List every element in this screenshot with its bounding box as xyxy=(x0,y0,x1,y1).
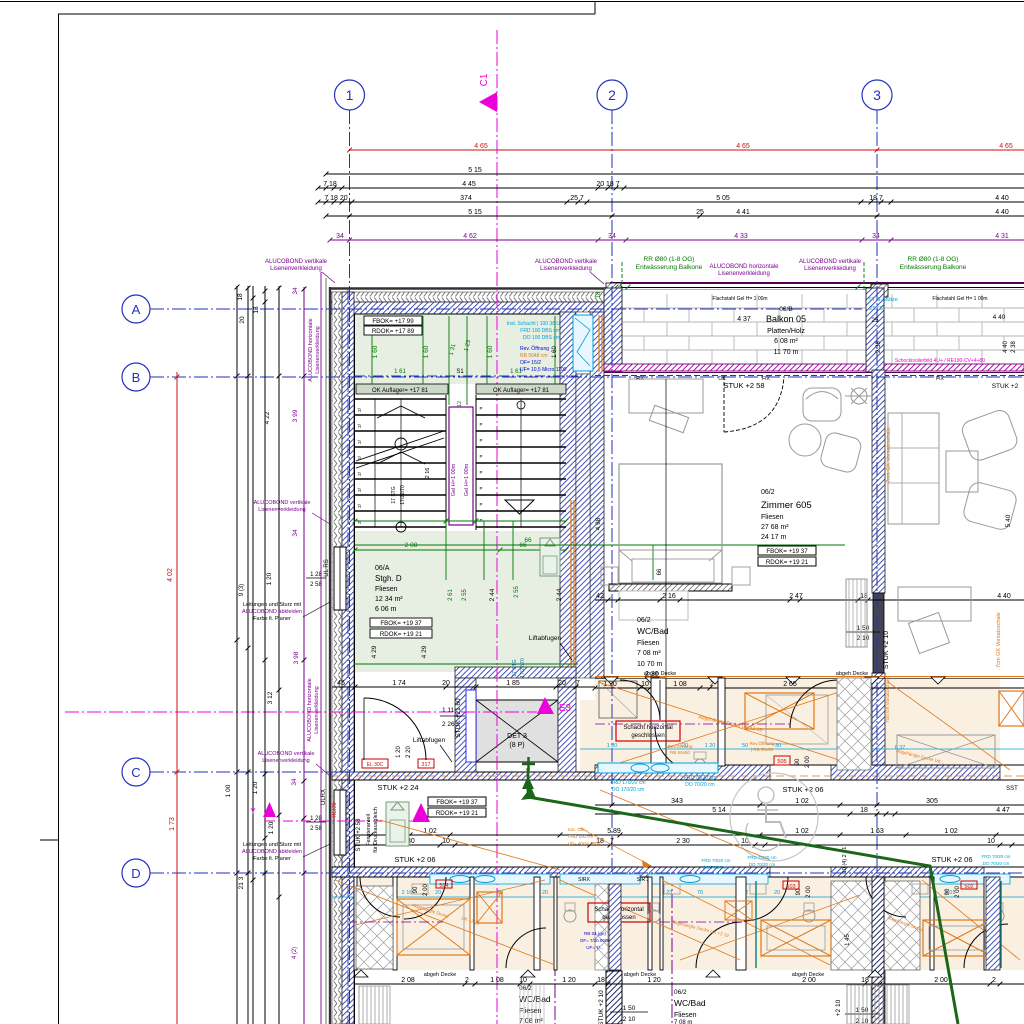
svg-text:06/2: 06/2 xyxy=(674,989,687,996)
svg-text:2 00: 2 00 xyxy=(423,884,429,896)
svg-text:2 58: 2 58 xyxy=(310,826,322,832)
svg-text:Y: Y xyxy=(250,807,256,816)
svg-text:4 40: 4 40 xyxy=(1003,341,1009,353)
svg-text:50: 50 xyxy=(742,743,748,749)
svg-text:4 41: 4 41 xyxy=(736,209,750,216)
svg-text:2 55: 2 55 xyxy=(462,589,468,601)
svg-text:1 02: 1 02 xyxy=(795,828,809,835)
svg-text:Schacht horizontal: Schacht horizontal xyxy=(623,725,672,731)
svg-text:70: 70 xyxy=(697,890,703,896)
svg-text:502: 502 xyxy=(964,884,973,890)
svg-text:Schockisolierbild 4U+ / RE190-: Schockisolierbild 4U+ / RE190-CV+4+80 xyxy=(895,358,985,364)
svg-text:4 31: 4 31 xyxy=(995,233,1009,240)
svg-text:RB 50x50: RB 50x50 xyxy=(670,750,690,755)
svg-text:Lisenenverkleidung: Lisenenverkleidung xyxy=(258,507,305,513)
svg-text:Entwässerung Balkone: Entwässerung Balkone xyxy=(636,264,703,271)
svg-text:STUK +2 10: STUK +2 10 xyxy=(883,631,890,669)
svg-text:ALUCOBOND vertikale: ALUCOBOND vertikale xyxy=(799,259,862,265)
svg-text:06/2: 06/2 xyxy=(761,489,775,496)
svg-text:ALUCOBOND vertikale: ALUCOBOND vertikale xyxy=(535,259,598,265)
svg-text:1 61: 1 61 xyxy=(394,369,406,375)
svg-text:4 33: 4 33 xyxy=(734,233,748,240)
svg-text:66: 66 xyxy=(657,568,663,575)
svg-text:6 06 m: 6 06 m xyxy=(375,606,397,613)
svg-text:20: 20 xyxy=(774,890,780,896)
svg-text:S1: S1 xyxy=(456,369,464,375)
svg-text:abgeh Decke: abgeh Decke xyxy=(644,671,676,677)
svg-text:UL RS: UL RS xyxy=(324,559,330,576)
svg-text:2 44: 2 44 xyxy=(489,588,496,601)
svg-text:P: P xyxy=(479,422,482,427)
svg-text:DET 3: DET 3 xyxy=(507,733,527,740)
svg-text:UF= 40cm 180F: UF= 40cm 180F xyxy=(568,841,601,846)
svg-text:3 98: 3 98 xyxy=(293,651,300,664)
svg-text:25 7: 25 7 xyxy=(570,195,584,202)
svg-text:2 61: 2 61 xyxy=(448,589,454,601)
svg-text:REI90: REI90 xyxy=(332,802,338,817)
svg-text:4 47: 4 47 xyxy=(996,807,1010,814)
svg-text:4 98: 4 98 xyxy=(595,517,602,530)
svg-text:Fliesen: Fliesen xyxy=(519,1008,542,1015)
svg-text:504: 504 xyxy=(439,883,448,889)
svg-text:STUK +2 06: STUK +2 06 xyxy=(782,785,823,794)
svg-text:FRD 70/20 cm: FRD 70/20 cm xyxy=(981,854,1010,859)
svg-text:5 40: 5 40 xyxy=(1005,514,1012,527)
svg-text:1 45: 1 45 xyxy=(845,934,851,946)
svg-text:6 37: 6 37 xyxy=(895,745,906,751)
svg-text:D: D xyxy=(131,866,140,881)
svg-text:2 00: 2 00 xyxy=(955,886,961,898)
svg-text:34: 34 xyxy=(291,778,298,786)
svg-text:für Druckausgleich: für Druckausgleich xyxy=(373,807,379,853)
svg-text:305: 305 xyxy=(926,798,938,805)
svg-text:1 20: 1 20 xyxy=(647,977,661,984)
svg-text:17/22/70: 17/22/70 xyxy=(400,485,406,505)
svg-text:343: 343 xyxy=(671,798,683,805)
svg-text:Fliesen: Fliesen xyxy=(761,514,784,521)
svg-text:Platten/Holz: Platten/Holz xyxy=(767,328,805,335)
svg-text:FRD 100 cm: FRD 100 cm xyxy=(568,834,594,839)
svg-text:ALUCOBOND horizontale: ALUCOBOND horizontale xyxy=(308,318,314,381)
svg-text:3 99: 3 99 xyxy=(292,409,299,422)
svg-text:FBOK= +19 37: FBOK= +19 37 xyxy=(766,548,808,555)
svg-text:90: 90 xyxy=(413,886,419,893)
svg-text:2: 2 xyxy=(465,977,469,984)
svg-text:ALUCOBOND abkleiden: ALUCOBOND abkleiden xyxy=(242,849,302,855)
svg-text:20: 20 xyxy=(558,680,566,687)
svg-text:20: 20 xyxy=(442,680,450,687)
svg-text:4 (2): 4 (2) xyxy=(292,947,298,959)
svg-text:SIRX: SIRX xyxy=(578,877,590,883)
svg-text:18: 18 xyxy=(237,293,244,301)
svg-text:Lisenenverkleidung: Lisenenverkleidung xyxy=(262,758,309,764)
svg-text:RR Ø80 (1-8 OG): RR Ø80 (1-8 OG) xyxy=(644,256,695,263)
svg-text:UF= 7/...: UF= 7/... xyxy=(586,945,603,950)
svg-text:Fliesen: Fliesen xyxy=(674,1012,697,1019)
svg-text:UF= 10,5 Micro 1100: UF= 10,5 Micro 1100 xyxy=(520,367,567,373)
svg-text:RDOK= +17 89: RDOK= +17 89 xyxy=(372,328,415,335)
svg-text:5 89: 5 89 xyxy=(607,828,621,835)
svg-text:66: 66 xyxy=(524,537,532,544)
svg-text:FBOK= +19 37: FBOK= +19 37 xyxy=(436,799,478,806)
svg-text:OF= 15/2: OF= 15/2 xyxy=(520,360,541,366)
svg-text:1 20: 1 20 xyxy=(562,977,576,984)
svg-text:1 20: 1 20 xyxy=(705,743,716,749)
svg-text:1 20: 1 20 xyxy=(266,572,273,585)
svg-text:ALUCOBOND vertikale: ALUCOBOND vertikale xyxy=(258,751,315,757)
svg-text:Liftabfugen: Liftabfugen xyxy=(529,635,562,642)
svg-text:5 05: 5 05 xyxy=(716,195,730,202)
svg-text:34: 34 xyxy=(872,233,880,240)
svg-text:7 08 m²: 7 08 m² xyxy=(637,650,661,657)
svg-text:WC/Bad: WC/Bad xyxy=(637,626,669,636)
svg-text:EL 30C: EL 30C xyxy=(367,762,384,768)
svg-text:Balkon 05: Balkon 05 xyxy=(766,314,806,324)
svg-text:STUK +2 10: STUK +2 10 xyxy=(598,990,605,1024)
svg-text:2 10: 2 10 xyxy=(623,1016,636,1023)
svg-text:Gel H=1 00m: Gel H=1 00m xyxy=(464,463,470,496)
svg-text:Leitungen und Sturz mit: Leitungen und Sturz mit xyxy=(243,602,302,608)
svg-text:1 20: 1 20 xyxy=(252,781,259,794)
svg-text:STUK +2 58: STUK +2 58 xyxy=(356,818,362,852)
svg-text:1 00: 1 00 xyxy=(225,784,232,797)
svg-text:RB 5048 cm: RB 5048 cm xyxy=(520,353,548,359)
svg-text:Flachstahl Gel H= 1 00m: Flachstahl Gel H= 1 00m xyxy=(712,296,767,302)
svg-text:1 50: 1 50 xyxy=(623,1005,636,1012)
svg-text:P: P xyxy=(479,470,482,475)
svg-text:25: 25 xyxy=(871,317,879,324)
svg-text:2 30: 2 30 xyxy=(676,838,690,845)
svg-text:06/2: 06/2 xyxy=(637,617,651,624)
svg-text:RDOK= +19 21: RDOK= +19 21 xyxy=(436,810,479,817)
svg-text:| RB 50x50: | RB 50x50 xyxy=(751,747,774,752)
svg-text:Stgh. D: Stgh. D xyxy=(375,574,402,583)
svg-text:06/B: 06/B xyxy=(779,306,792,313)
svg-text:34: 34 xyxy=(292,287,299,295)
svg-text:Zimmer 605: Zimmer 605 xyxy=(761,500,812,511)
svg-text:4 40: 4 40 xyxy=(993,314,1006,321)
svg-text:1 50: 1 50 xyxy=(857,625,870,632)
svg-text:2 00: 2 00 xyxy=(806,886,812,898)
svg-text:11 70 m: 11 70 m xyxy=(774,349,799,356)
svg-text:4 45: 4 45 xyxy=(462,181,476,188)
svg-text:5 15: 5 15 xyxy=(468,167,482,174)
svg-text:Flachstahl Gel H= 1 00m: Flachstahl Gel H= 1 00m xyxy=(932,296,987,302)
svg-text:7cm GK Vorsatzschale: 7cm GK Vorsatzschale xyxy=(885,677,890,723)
svg-text:4 65: 4 65 xyxy=(736,143,750,150)
svg-text:1 20: 1 20 xyxy=(607,743,618,749)
svg-text:1 74: 1 74 xyxy=(392,680,406,687)
svg-text:13: 13 xyxy=(253,306,260,314)
svg-text:2 38: 2 38 xyxy=(1011,341,1017,353)
svg-text:RDOK= +19 21: RDOK= +19 21 xyxy=(766,559,809,566)
svg-text:17 STG: 17 STG xyxy=(391,486,397,503)
svg-text:4 65: 4 65 xyxy=(474,143,488,150)
svg-text:Farbe lt. Planer: Farbe lt. Planer xyxy=(253,856,291,862)
svg-text:FRD 70/20 cm: FRD 70/20 cm xyxy=(747,855,776,860)
svg-text:1 11: 1 11 xyxy=(442,707,455,714)
svg-text:C: C xyxy=(131,765,140,780)
svg-text:RR Ø80 (1-8 OG): RR Ø80 (1-8 OG) xyxy=(908,256,959,263)
svg-text:9 (3): 9 (3) xyxy=(239,584,245,596)
svg-text:Lisenenverkleidung: Lisenenverkleidung xyxy=(315,326,321,373)
svg-text:SST: SST xyxy=(1006,786,1018,792)
svg-text:2 16: 2 16 xyxy=(425,468,431,479)
svg-text:1 85: 1 85 xyxy=(506,680,520,687)
svg-text:Rev.Öffnung: Rev.Öffnung xyxy=(750,740,775,746)
svg-text:18: 18 xyxy=(861,977,869,984)
svg-text:1 08: 1 08 xyxy=(673,681,687,688)
svg-text:4 62: 4 62 xyxy=(463,233,477,240)
svg-text:DO 70/20 cm: DO 70/20 cm xyxy=(983,861,1010,866)
svg-text:Rev. Öffnung: Rev. Öffnung xyxy=(520,345,549,352)
svg-text:90: 90 xyxy=(795,758,801,765)
svg-text:1 60: 1 60 xyxy=(552,346,558,358)
svg-text:7 08 m: 7 08 m xyxy=(674,1020,692,1024)
svg-text:20: 20 xyxy=(239,316,246,324)
svg-text:OK Auflager= +17 81: OK Auflager= +17 81 xyxy=(372,388,429,394)
svg-text:DO 70/20 cm: DO 70/20 cm xyxy=(703,865,730,870)
svg-text:25: 25 xyxy=(696,209,704,216)
svg-text:2: 2 xyxy=(608,87,616,103)
svg-text:503: 503 xyxy=(786,884,795,890)
svg-text:5 14: 5 14 xyxy=(712,807,726,814)
svg-text:DO 170/20 cm: DO 170/20 cm xyxy=(612,787,644,793)
svg-text:ST B-Stütze: ST B-Stütze xyxy=(868,297,898,303)
svg-text:Lisenenverkleidung: Lisenenverkleidung xyxy=(718,271,770,277)
svg-text:1 02: 1 02 xyxy=(944,828,958,835)
svg-text:24 17 m: 24 17 m xyxy=(761,534,786,541)
svg-text:7cm GK Vorsatzschale: 7cm GK Vorsatzschale xyxy=(996,612,1002,668)
svg-text:FRD 100 DBS cm: FRD 100 DBS cm xyxy=(520,328,560,334)
svg-text:abgeh Decke: abgeh Decke xyxy=(424,972,456,978)
svg-text:FRD 70/20 cm: FRD 70/20 cm xyxy=(701,858,730,863)
svg-text:P: P xyxy=(479,454,482,459)
svg-text:P: P xyxy=(479,486,482,491)
svg-text:7 18: 7 18 xyxy=(323,181,337,188)
svg-text:3 12: 3 12 xyxy=(267,691,274,704)
svg-text:2 44: 2 44 xyxy=(556,588,563,601)
svg-text:10 70 m: 10 70 m xyxy=(637,661,662,668)
svg-text:5 15: 5 15 xyxy=(468,209,482,216)
svg-text:4 40: 4 40 xyxy=(995,195,1009,202)
svg-text:STUK +2 06: STUK +2 06 xyxy=(394,855,435,864)
svg-text:90: 90 xyxy=(796,888,802,895)
svg-text:34: 34 xyxy=(292,529,299,537)
svg-text:2 55: 2 55 xyxy=(514,586,520,598)
svg-text:Entwässerung Balkone: Entwässerung Balkone xyxy=(900,264,967,271)
svg-text:34: 34 xyxy=(608,233,616,240)
svg-text:4 29: 4 29 xyxy=(371,645,378,658)
svg-text:P: P xyxy=(479,438,482,443)
svg-text:ALUCOBOND horizontale: ALUCOBOND horizontale xyxy=(709,264,779,270)
svg-text:30: 30 xyxy=(775,743,781,749)
svg-text:Lisenenverkleidung: Lisenenverkleidung xyxy=(270,266,322,272)
svg-text:2 16: 2 16 xyxy=(662,593,676,600)
svg-text:42: 42 xyxy=(596,593,604,600)
svg-text:18: 18 xyxy=(860,807,868,814)
svg-text:4 65: 4 65 xyxy=(999,143,1013,150)
svg-text:Lisenenverkleidung: Lisenenverkleidung xyxy=(314,686,320,733)
svg-text:ALUCOBOND vertikale: ALUCOBOND vertikale xyxy=(254,500,311,506)
svg-text:2 08: 2 08 xyxy=(405,542,418,549)
svg-text:P: P xyxy=(479,502,482,507)
svg-text:2 58: 2 58 xyxy=(310,582,322,588)
svg-text:21 3: 21 3 xyxy=(238,876,245,889)
svg-text:FBOK= +17 99: FBOK= +17 99 xyxy=(372,318,414,325)
svg-text:WC/Bad: WC/Bad xyxy=(674,998,706,1008)
svg-text:90: 90 xyxy=(945,888,951,895)
svg-text:2 47: 2 47 xyxy=(789,593,803,600)
svg-text:20 18 7: 20 18 7 xyxy=(596,181,619,188)
svg-text:45: 45 xyxy=(337,680,345,687)
svg-text:2: 2 xyxy=(992,977,996,984)
svg-text:1 20: 1 20 xyxy=(268,821,275,834)
svg-text:Fliesen: Fliesen xyxy=(375,586,398,593)
svg-text:1 08: 1 08 xyxy=(490,977,504,984)
svg-text:10: 10 xyxy=(987,838,995,845)
svg-text:2 16: 2 16 xyxy=(402,890,413,896)
svg-text:4 40: 4 40 xyxy=(995,209,1009,216)
svg-text:1 60: 1 60 xyxy=(487,345,494,358)
svg-text:Inst. Schacht | 100 38 U: Inst. Schacht | 100 38 U xyxy=(507,321,561,327)
svg-text:OK Auflager= +17 81: OK Auflager= +17 81 xyxy=(493,388,550,394)
svg-text:Liftabfugen: Liftabfugen xyxy=(413,737,446,744)
svg-text:Fensteranteil: Fensteranteil xyxy=(366,814,372,846)
svg-text:1 02: 1 02 xyxy=(795,798,809,805)
svg-text:4 02: 4 02 xyxy=(167,568,174,582)
svg-text:A: A xyxy=(132,302,141,317)
svg-text:2 65: 2 65 xyxy=(783,681,797,688)
svg-text:2 20: 2 20 xyxy=(406,746,412,758)
svg-text:18: 18 xyxy=(597,977,605,984)
svg-text:E3: E3 xyxy=(559,703,572,714)
svg-text:DO 70/20 cm: DO 70/20 cm xyxy=(749,862,776,867)
svg-text:RB 04 (ge): RB 04 (ge) xyxy=(584,931,606,936)
svg-text:B: B xyxy=(132,370,141,385)
svg-text:ALUCOBOND vertikale: ALUCOBOND vertikale xyxy=(265,259,328,265)
svg-text:2 10: 2 10 xyxy=(857,635,870,642)
svg-text:1 60: 1 60 xyxy=(423,345,430,358)
svg-text:+2 10: +2 10 xyxy=(835,999,842,1016)
svg-text:3: 3 xyxy=(873,87,881,103)
svg-text:17/22/70: 17/22/70 xyxy=(520,658,526,678)
svg-text:27 68 m²: 27 68 m² xyxy=(761,524,789,531)
svg-text:Lisenenverkleidung: Lisenenverkleidung xyxy=(540,266,592,272)
svg-text:12 34 m²: 12 34 m² xyxy=(375,596,403,603)
svg-text:DO 70/20 cm: DO 70/20 cm xyxy=(685,782,714,788)
svg-text:18: 18 xyxy=(596,291,602,298)
svg-text:2 08: 2 08 xyxy=(401,977,415,984)
svg-text:ALUCOBOND abkleiden: ALUCOBOND abkleiden xyxy=(242,609,302,615)
svg-text:Rev.Öffnung: Rev.Öffnung xyxy=(668,743,693,749)
svg-text:FBOK= +19 37: FBOK= +19 37 xyxy=(380,620,422,627)
svg-text:FRD 70/20 cm: FRD 70/20 cm xyxy=(684,775,716,781)
svg-text:C1: C1 xyxy=(479,73,490,86)
svg-text:1 28: 1 28 xyxy=(310,572,322,578)
svg-text:2STS: 2STS xyxy=(869,306,883,312)
svg-text:1 20: 1 20 xyxy=(396,746,402,758)
svg-text:2 00: 2 00 xyxy=(805,756,811,768)
svg-text:STUK +2 58: STUK +2 58 xyxy=(723,381,764,390)
svg-text:1: 1 xyxy=(346,87,354,103)
svg-text:Leitungen und Sturz mit: Leitungen und Sturz mit xyxy=(243,842,302,848)
svg-text:ULRX: ULRX xyxy=(321,789,327,805)
svg-text:RDOK= +19 21: RDOK= +19 21 xyxy=(380,631,423,638)
svg-text:1 63: 1 63 xyxy=(870,828,884,835)
svg-text:FRD 170/20 cm: FRD 170/20 cm xyxy=(610,780,645,786)
svg-text:34: 34 xyxy=(336,233,344,240)
svg-text:4 40: 4 40 xyxy=(997,593,1011,600)
svg-text:2: 2 xyxy=(710,681,714,688)
svg-text:6 08 m²: 6 08 m² xyxy=(774,338,798,345)
svg-text:STUK +2 24: STUK +2 24 xyxy=(377,783,418,792)
svg-text:Farbe lt. Planer: Farbe lt. Planer xyxy=(253,616,291,622)
svg-text:OF= 7/2b 8006: OF= 7/2b 8006 xyxy=(580,938,611,943)
svg-text:2 00: 2 00 xyxy=(934,977,948,984)
svg-text:Gel H=1 00m: Gel H=1 00m xyxy=(451,463,457,496)
svg-text:7 18 20: 7 18 20 xyxy=(324,195,347,202)
svg-text:1 60: 1 60 xyxy=(372,345,379,358)
svg-text:4 22: 4 22 xyxy=(264,411,271,424)
svg-text:4 37: 4 37 xyxy=(737,316,751,323)
svg-text:P: P xyxy=(479,406,482,411)
svg-text:17 STG: 17 STG xyxy=(512,659,518,676)
svg-text:abgeh Decke: abgeh Decke xyxy=(836,671,868,677)
svg-text:4 29: 4 29 xyxy=(421,645,428,658)
svg-text:STUK +2: STUK +2 xyxy=(992,383,1019,390)
svg-text:7cm GK Vorsatzschale: 7cm GK Vorsatzschale xyxy=(886,427,892,483)
svg-text:geschlossen: geschlossen xyxy=(631,733,664,739)
svg-text:505: 505 xyxy=(777,759,786,765)
svg-text:06/2: 06/2 xyxy=(519,985,532,992)
svg-text:18 7: 18 7 xyxy=(869,195,883,202)
svg-text:1 73: 1 73 xyxy=(169,817,176,831)
svg-text:374: 374 xyxy=(460,195,472,202)
svg-text:20: 20 xyxy=(542,890,548,896)
svg-text:(8 P): (8 P) xyxy=(509,742,524,749)
svg-text:10: 10 xyxy=(519,977,527,984)
svg-text:Fliesen: Fliesen xyxy=(637,640,660,647)
svg-text:DO 100 DBS cm: DO 100 DBS cm xyxy=(523,335,560,341)
svg-text:12: 12 xyxy=(457,401,463,407)
svg-text:STUK +2 06: STUK +2 06 xyxy=(931,855,972,864)
svg-text:2 00: 2 00 xyxy=(802,977,816,984)
svg-text:2 26: 2 26 xyxy=(442,721,455,728)
svg-text:317: 317 xyxy=(421,762,430,768)
svg-text:20: 20 xyxy=(435,890,441,896)
svg-text:ALUCOBOND horizontale: ALUCOBOND horizontale xyxy=(307,678,313,741)
svg-text:7: 7 xyxy=(576,680,580,687)
svg-text:Lisenenverkleidung: Lisenenverkleidung xyxy=(804,266,856,272)
svg-text:STUK +21 60: STUK +21 60 xyxy=(455,698,462,738)
svg-text:2 38: 2 38 xyxy=(876,341,882,353)
svg-text:06/A: 06/A xyxy=(375,565,390,572)
